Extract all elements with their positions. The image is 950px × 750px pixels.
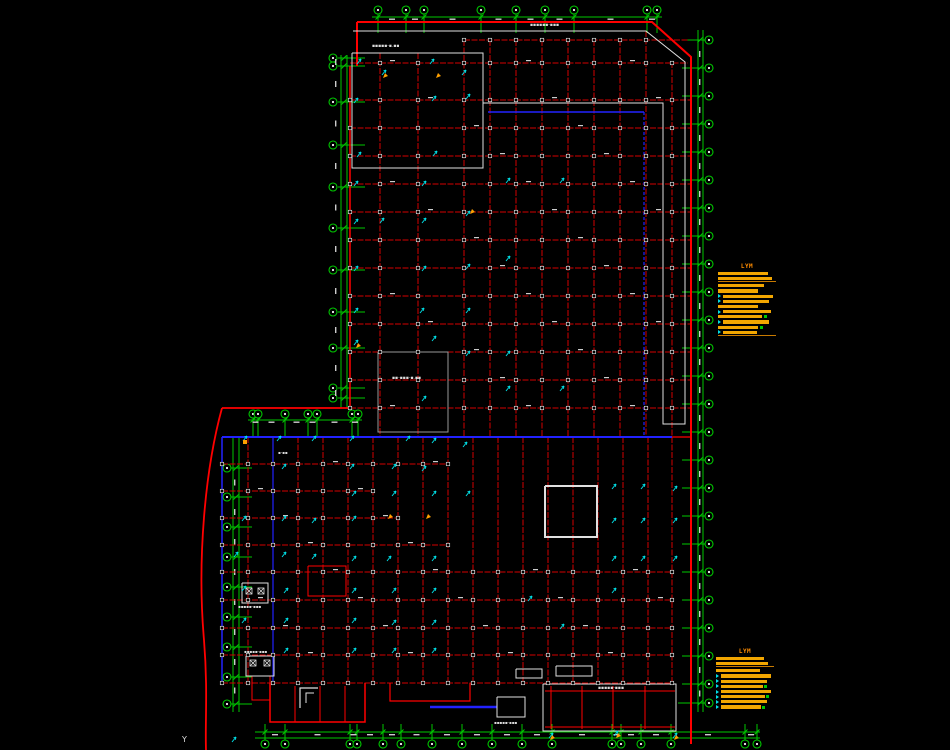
note-text-bar <box>718 284 764 287</box>
cyan-arrow-icon <box>718 299 721 303</box>
note-line <box>716 657 774 661</box>
note-line <box>716 662 774 668</box>
orange-marks-layer <box>243 73 679 740</box>
column-markers-layer <box>220 38 673 684</box>
note-text-bar <box>721 685 763 688</box>
note-text-bar <box>721 705 761 708</box>
gray-aux-layer <box>378 352 448 432</box>
floor-plan-drawing: ▪▪▪▪▪▪-▪▪▪▪▪▪▪▪-▪.▪▪▪▪-▪▪▪-▪.▪▪▪-▪▪▪▪▪▪▪… <box>0 0 950 750</box>
note-text-bar <box>723 320 769 323</box>
note-line <box>716 685 774 689</box>
note-line <box>718 320 776 324</box>
plan-label: ▪-▪▪ <box>278 450 288 455</box>
note-text-bar <box>718 277 772 280</box>
note-text-bar <box>718 326 758 329</box>
grid-bubbles-layer <box>223 6 761 748</box>
cyan-arrow-icon <box>716 700 719 704</box>
cyan-arrow-icon <box>718 310 721 314</box>
note-line <box>718 305 776 309</box>
note-line <box>718 310 776 314</box>
cyan-arrow-icon <box>718 320 721 324</box>
note-text-bar <box>723 300 769 303</box>
note-text-bar <box>718 315 762 318</box>
cyan-arrow-icon <box>716 674 719 678</box>
plan-label: ▪▪▪▪▪▪-▪▪▪ <box>530 23 559 28</box>
plan-label: ▪▪▪▪▪-▪▪▪ <box>494 720 517 725</box>
note-line <box>716 674 774 678</box>
note-line <box>716 700 774 704</box>
red-boundary-layer <box>222 22 691 744</box>
cyan-arrow-icon <box>716 690 719 694</box>
plan-label: ▪▪▪▪▪-▪▪▪ <box>244 649 267 654</box>
beam-text-layer <box>258 60 663 653</box>
cyan-arrow-icon <box>716 679 719 683</box>
note-text-bar <box>721 674 771 677</box>
note-line <box>716 695 774 699</box>
green-mark-icon <box>766 695 769 698</box>
green-mark-icon <box>760 326 763 329</box>
note-text-bar <box>721 690 771 693</box>
note-line <box>718 284 776 288</box>
dimension-lines-layer <box>231 14 760 740</box>
note-text-bar <box>721 695 765 698</box>
green-mark-icon <box>764 315 767 318</box>
blue-tray-layer <box>222 112 672 707</box>
note-line <box>718 315 776 319</box>
green-mark-icon <box>764 685 767 688</box>
note-text-bar <box>716 657 764 660</box>
plan-label: ▪▪▪▪▪-▪▪▪ <box>598 686 624 691</box>
note-line <box>716 705 774 709</box>
note-text-bar <box>723 310 771 313</box>
note-line <box>718 272 776 276</box>
note-text-bar <box>723 331 757 334</box>
plan-label: ▪▪▪▪▪-▪.▪▪ <box>372 44 399 49</box>
note-title: LYM <box>716 649 774 655</box>
note-line <box>718 325 776 329</box>
cad-viewport[interactable]: ▪▪▪▪▪▪-▪▪▪▪▪▪▪▪-▪.▪▪▪▪-▪▪▪-▪.▪▪▪-▪▪▪▪▪▪▪… <box>0 0 950 750</box>
note-text-bar <box>718 272 768 275</box>
note-text-bar <box>716 669 760 672</box>
cyan-arrow-icon <box>716 684 719 688</box>
plan-label: Y <box>181 735 187 744</box>
note-line <box>716 690 774 694</box>
road-boundary-layer <box>201 408 222 750</box>
cyan-arrow-icon <box>718 330 721 334</box>
note-line <box>716 669 774 673</box>
note-line <box>718 294 776 298</box>
note-line <box>716 679 774 683</box>
cyan-arrow-icon <box>716 695 719 699</box>
note-block-2: LYM <box>716 649 774 709</box>
note-block-1: LYM <box>718 264 776 336</box>
note-text-bar <box>716 662 768 665</box>
note-text-bar <box>718 305 758 308</box>
note-line <box>718 277 776 283</box>
note-text-bar <box>721 680 767 683</box>
cyan-arrow-icon <box>716 705 719 709</box>
green-mark-icon <box>762 706 765 709</box>
note-title: LYM <box>718 264 776 270</box>
plan-label: ▪▪▪▪▪-▪▪▪ <box>238 604 261 609</box>
note-text-bar <box>718 289 758 292</box>
note-line <box>718 331 776 337</box>
note-text-bar <box>721 700 767 703</box>
cyan-arrow-icon <box>718 294 721 298</box>
device-marks-layer <box>232 59 677 742</box>
note-line <box>718 300 776 304</box>
plan-label: ▪▪-▪▪▪-▪.▪▪ <box>392 376 421 381</box>
note-line <box>718 289 776 293</box>
text-labels-layer: ▪▪▪▪▪▪-▪▪▪▪▪▪▪▪-▪.▪▪▪▪-▪▪▪-▪.▪▪▪-▪▪▪▪▪▪▪… <box>181 23 624 744</box>
note-text-bar <box>723 295 773 298</box>
